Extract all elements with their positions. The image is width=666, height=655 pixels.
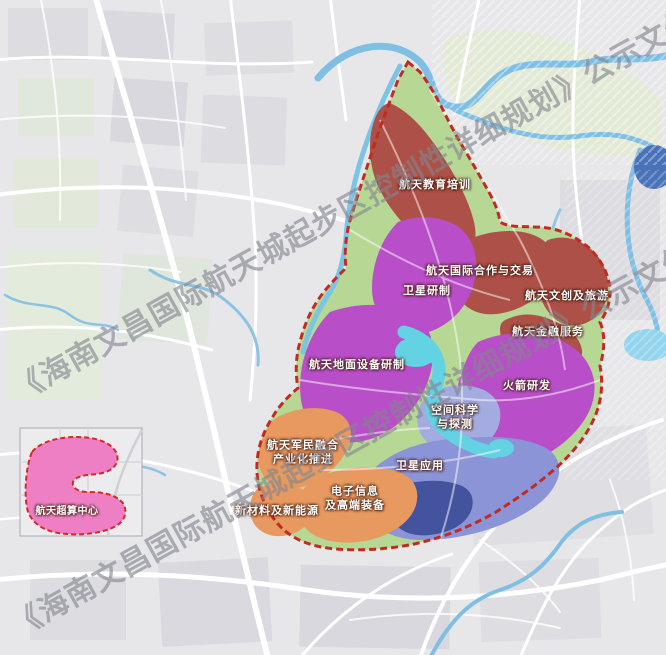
planning-map: 航天教育培训 航天国际合作与交易 卫星研制 航天文创及旅游 航天金融服务 航天地… (0, 0, 666, 655)
hatch-overlay-top (432, 0, 666, 165)
map-canvas (0, 0, 666, 655)
inset-supercomputing-map (20, 428, 142, 536)
